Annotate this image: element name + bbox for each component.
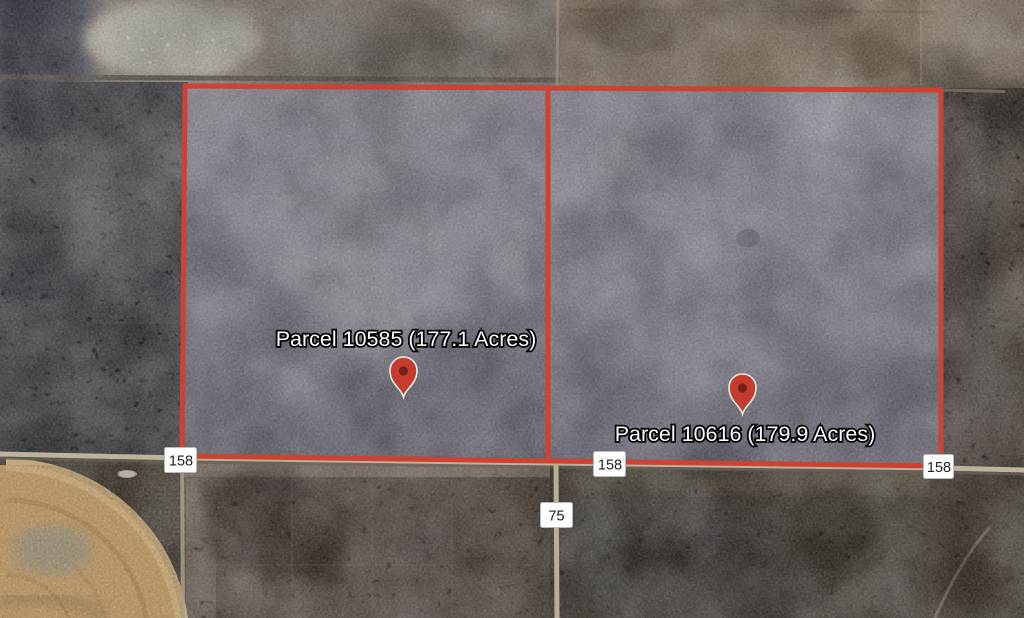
- svg-text:158: 158: [169, 454, 193, 470]
- svg-text:158: 158: [598, 458, 622, 474]
- svg-text:158: 158: [927, 460, 951, 476]
- svg-text:Parcel 10616 (179.9 Acres): Parcel 10616 (179.9 Acres): [615, 422, 876, 446]
- svg-text:75: 75: [548, 509, 564, 525]
- svg-text:Parcel 10585 (177.1 Acres): Parcel 10585 (177.1 Acres): [276, 327, 537, 351]
